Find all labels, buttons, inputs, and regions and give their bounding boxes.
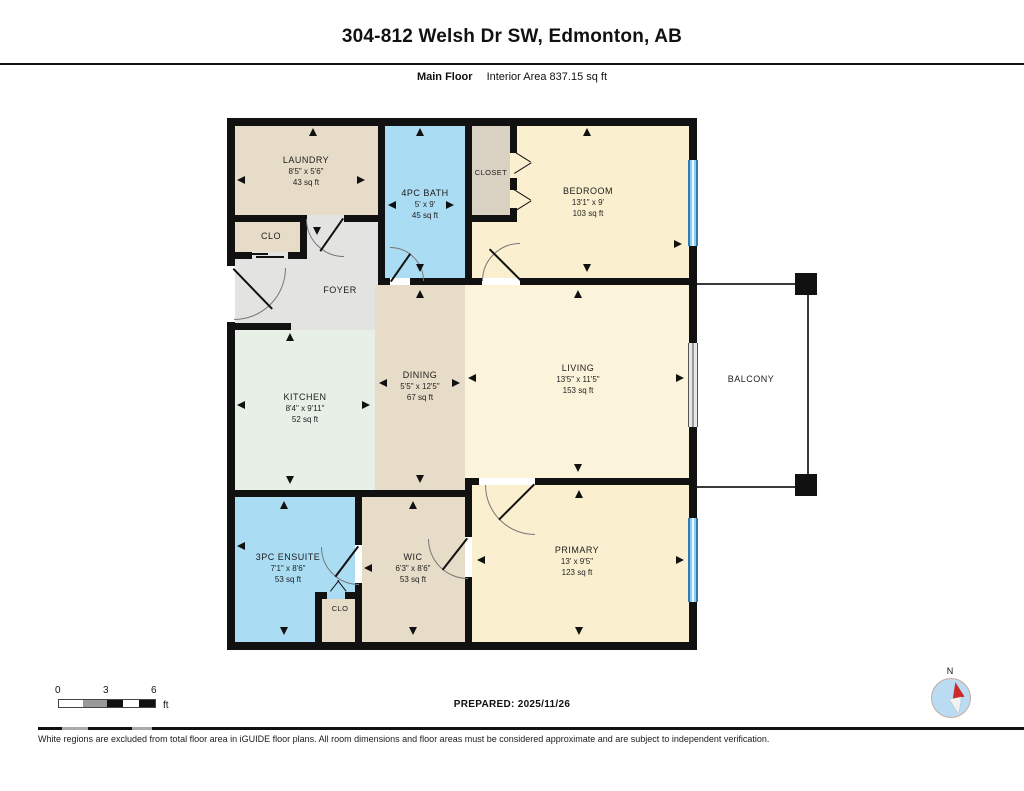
arrow-up-icon (416, 128, 424, 136)
disclaimer-text: White regions are excluded from total fl… (38, 734, 998, 744)
room-label-closet: CLOSET (451, 167, 531, 178)
footer-divider-dash (62, 727, 88, 730)
arrow-up-icon (309, 128, 317, 136)
wall-kitchen-stub (227, 323, 291, 330)
prepared-date: PREPARED: 2025/11/26 (0, 699, 1024, 710)
arrow-right-icon (674, 240, 682, 248)
interior-area-label: Interior Area 837.15 sq ft (487, 71, 607, 83)
balcony-post-bottom (795, 474, 817, 496)
wall-closet-stub-a (510, 125, 517, 153)
balcony-rail-top (697, 283, 809, 285)
room-label-balcony: BALCONY (681, 374, 821, 385)
arrow-up-icon (575, 490, 583, 498)
room-label-foyer: FOYER (270, 285, 410, 296)
arrow-up-icon (574, 290, 582, 298)
wall-living-primary-b (535, 478, 697, 485)
primary-window (688, 518, 698, 602)
wall-outer-left-lower (227, 322, 235, 650)
wall-ensuite-wic-a (355, 497, 362, 545)
wall-clo2-top-a (315, 592, 327, 599)
primary-door-arc (485, 485, 535, 535)
scale-tick-0: 0 (55, 685, 61, 696)
footer-divider-dash (132, 727, 152, 730)
arrow-left-icon (237, 542, 245, 550)
room-label-bath: 4PC BATH 5' x 9' 45 sq ft (355, 188, 495, 221)
arrow-down-icon (313, 227, 321, 235)
footer-divider (38, 727, 1024, 730)
scale-tick-6: 6 (151, 685, 157, 696)
arrow-up-icon (583, 128, 591, 136)
wall-outer-top (227, 118, 697, 126)
arrow-up-icon (280, 501, 288, 509)
clo-slider-door (240, 253, 268, 255)
wall-mid-a (378, 278, 390, 285)
page-title: 304-812 Welsh Dr SW, Edmonton, AB (0, 26, 1024, 48)
compass-needle-south (949, 697, 964, 715)
wall-wic-primary-a (465, 497, 472, 537)
wall-outer-left-upper (227, 118, 235, 266)
room-label-primary: PRIMARY 13' x 9'5" 123 sq ft (507, 545, 647, 578)
room-label-wic: WIC 6'3" x 8'6" 53 sq ft (343, 552, 483, 585)
bedroom-window (688, 160, 698, 246)
floor-label: Main Floor (417, 71, 473, 83)
arrow-down-icon (280, 627, 288, 635)
arrow-down-icon (574, 464, 582, 472)
wall-mid-c (520, 278, 697, 285)
header-divider (0, 63, 1024, 65)
room-label-clo-top: CLO (236, 231, 306, 242)
arrow-right-icon (676, 556, 684, 564)
compass-icon: N (918, 666, 982, 732)
arrow-up-icon (286, 333, 294, 341)
arrow-up-icon (416, 290, 424, 298)
arrow-down-icon (416, 475, 424, 483)
compass-needle-north (949, 681, 964, 699)
room-label-clo-bottom: CLO (315, 603, 365, 614)
arrow-up-icon (409, 501, 417, 509)
compass-north-label: N (918, 666, 982, 676)
wall-clo-bottom-b (288, 252, 307, 259)
wall-laundry-bottom-a (234, 215, 307, 222)
balcony-rail-right (807, 283, 809, 488)
arrow-down-icon (286, 476, 294, 484)
wall-clo2-left (315, 592, 322, 643)
balcony-rail-bottom (697, 486, 809, 488)
floor-subtitle: Main FloorInterior Area 837.15 sq ft (0, 71, 1024, 83)
clo-slider-door (256, 256, 284, 258)
room-label-dining: DINING 5'5" x 12'5" 67 sq ft (350, 370, 490, 403)
room-label-bedroom: BEDROOM 13'1" x 9' 103 sq ft (518, 186, 658, 219)
wall-outer-bottom (227, 642, 697, 650)
compass-ring (931, 678, 971, 718)
wall-living-primary-a (465, 478, 479, 485)
arrow-down-icon (416, 264, 424, 272)
arrow-down-icon (409, 627, 417, 635)
arrow-down-icon (583, 264, 591, 272)
room-label-living: LIVING 13'5" x 11'5" 153 sq ft (508, 363, 648, 396)
wall-clo2-top-b (345, 592, 362, 599)
scale-tick-3: 3 (103, 685, 109, 696)
room-label-laundry: LAUNDRY 8'5" x 5'6" 43 sq ft (236, 155, 376, 188)
wall-lower-section-top (227, 490, 472, 497)
room-label-ensuite: 3PC ENSUITE 7'1" x 8'6" 53 sq ft (218, 552, 358, 585)
balcony-post-top (795, 273, 817, 295)
arrow-down-icon (575, 627, 583, 635)
balcony-sliding-door (688, 343, 698, 427)
wall-wic-primary-b (465, 577, 472, 643)
